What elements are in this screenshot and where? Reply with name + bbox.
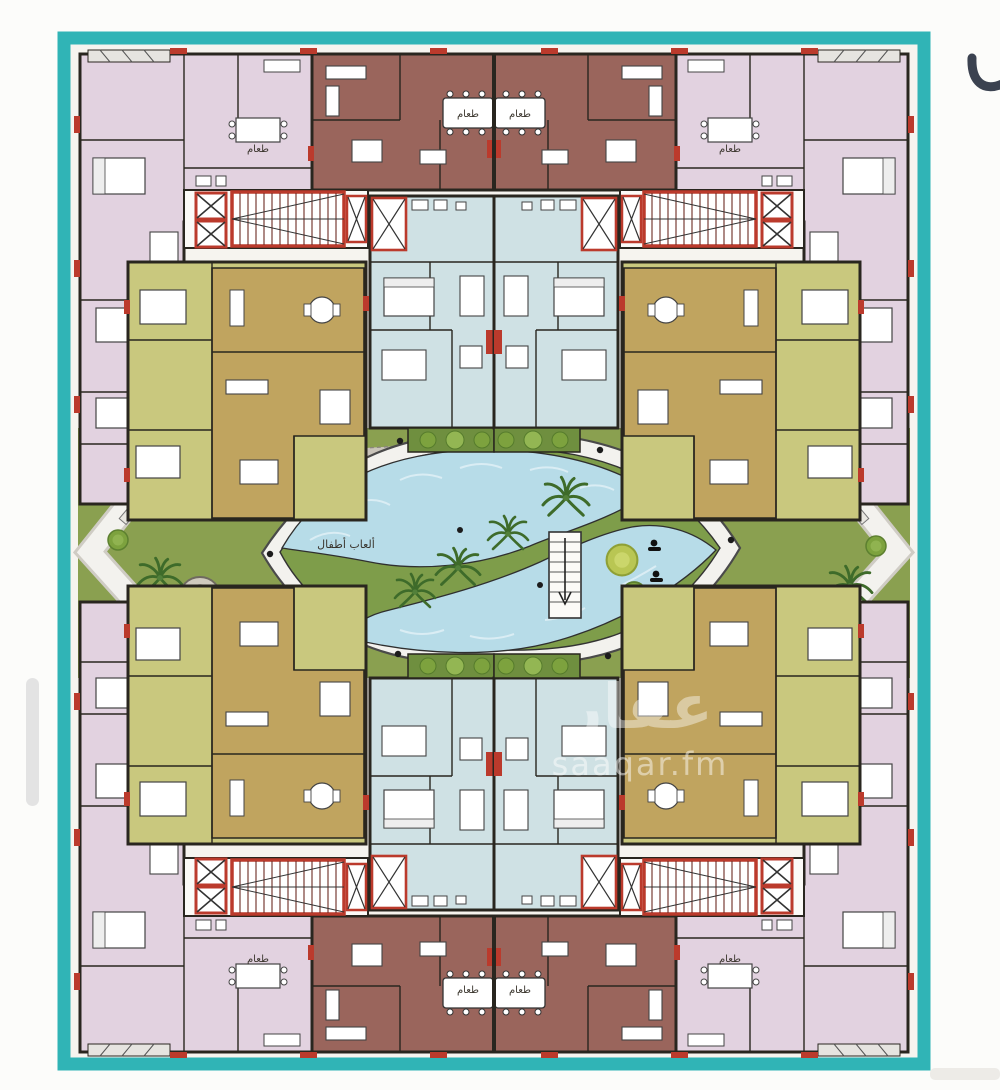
watermark: عقار saaqar.fm [552, 670, 729, 783]
cropped-character-artifact [972, 58, 1000, 87]
playground-label: ألعاب أطفال [317, 537, 375, 551]
frame-shadow [930, 1068, 1000, 1080]
building-quadrant-bottom-right [494, 586, 914, 1058]
dining-label: طعام [247, 954, 269, 965]
building-quadrant-top-right [494, 48, 914, 520]
building-quadrant-top-left [74, 48, 494, 520]
dining-label: طعام [247, 144, 269, 155]
watermark-logo: عقار [564, 670, 713, 743]
scrollbar-thumb[interactable] [26, 678, 39, 806]
dining-label: طعام [509, 985, 531, 996]
dining-label: طعام [509, 109, 531, 120]
screenshot-stage: طعام طعام طعام طعام طعام طعام طعام طعام … [0, 0, 1000, 1086]
dining-label: طعام [457, 109, 479, 120]
courtyard-stairs [549, 532, 581, 618]
dining-label: طعام [457, 985, 479, 996]
watermark-site: saaqar.fm [552, 745, 729, 783]
dining-label: طعام [719, 954, 741, 965]
floor-plan-image: طعام طعام طعام طعام طعام طعام طعام طعام … [0, 0, 1000, 1086]
building-quadrant-bottom-left [74, 586, 494, 1058]
dining-label: طعام [719, 144, 741, 155]
